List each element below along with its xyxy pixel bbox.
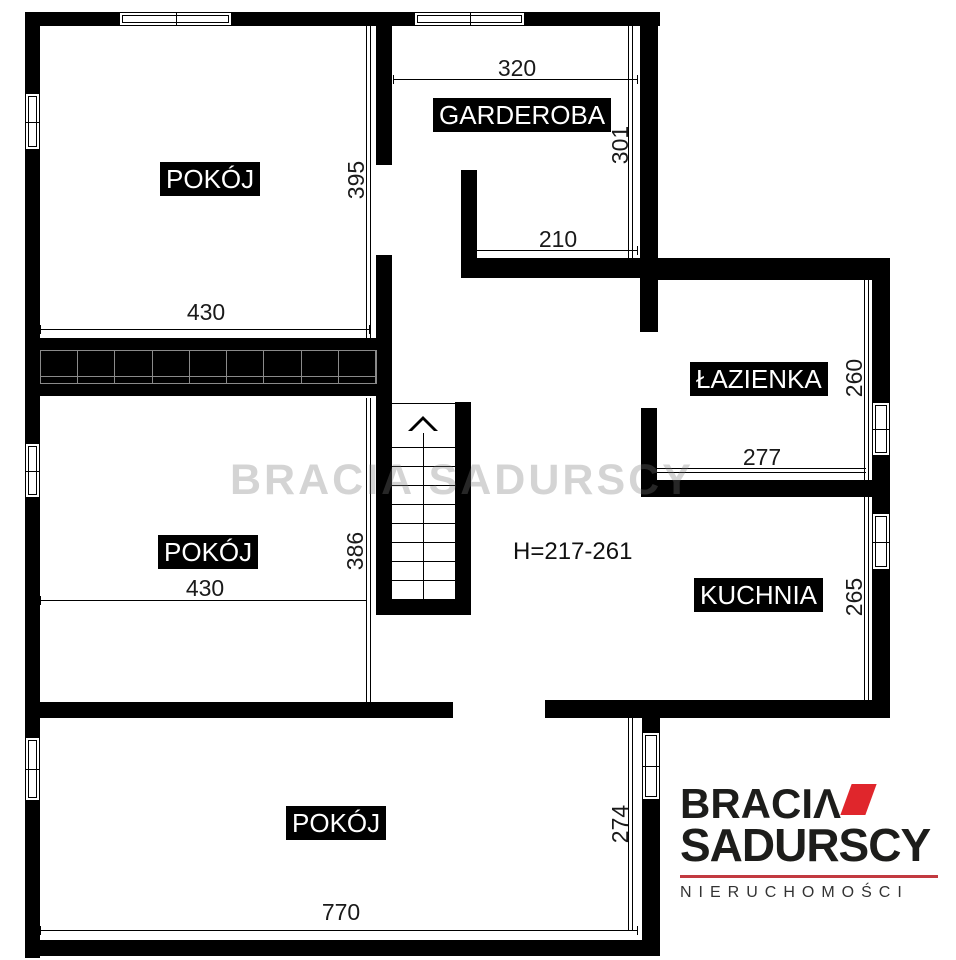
- room-label-pokoj-top: POKÓJ: [160, 162, 260, 196]
- wardrobe-symbol: [40, 350, 377, 384]
- logo-text-sadurscy: SADURSCY: [680, 822, 942, 868]
- wall-bottom: [25, 940, 660, 956]
- wall-middle: [25, 702, 453, 718]
- window-divider: [26, 122, 39, 123]
- wall-pokoj-top-right-upper: [376, 26, 392, 165]
- dim-pokoj-bottom-height: 274: [607, 794, 633, 854]
- agency-logo: BRACIΛ SADURSCY NIERUCHOMOŚCI: [680, 783, 942, 902]
- dim-pokoj-middle-height: 386: [342, 521, 368, 581]
- floor-plan-canvas: 320 301 210 395 430 260 277 386 430 265 …: [0, 0, 956, 960]
- stair-direction-arrow-inner: [412, 420, 434, 431]
- wall-right-upper: [872, 258, 890, 402]
- wall-stairs-left: [376, 396, 392, 615]
- logo-text-nieruchomosci: NIERUCHOMOŚCI: [680, 884, 942, 902]
- dimline-770: [40, 930, 638, 931]
- dim-garderoba-inner-width: 210: [528, 226, 588, 252]
- room-label-pokoj-bottom: POKÓJ: [286, 806, 386, 840]
- window-top-garderoba: [414, 12, 525, 26]
- room-label-pokoj-middle: POKÓJ: [158, 535, 258, 569]
- dim-lazienka-height: 260: [841, 348, 867, 408]
- wall-right-mid: [872, 456, 890, 513]
- window-left-upper: [25, 93, 40, 150]
- window-divider: [176, 13, 177, 25]
- wardrobe-cell: [153, 351, 190, 383]
- watermark-text: BRACIA SADURSCY: [230, 456, 694, 505]
- wall-stairs-right: [455, 402, 471, 615]
- wardrobe-cell: [190, 351, 227, 383]
- window-divider: [26, 471, 39, 472]
- window-divider: [873, 542, 889, 543]
- room-label-garderoba: GARDEROBA: [433, 98, 611, 132]
- logo-red-rule: [680, 875, 938, 878]
- wall-garderoba-l-horizontal: [461, 258, 657, 278]
- window-lazienka: [872, 402, 890, 456]
- window-divider: [470, 13, 471, 25]
- dim-lazienka-width: 277: [732, 444, 792, 470]
- dim-pokoj-middle-width: 430: [175, 575, 235, 601]
- window-left-lower: [25, 737, 40, 801]
- window-pokoj-bottom: [642, 732, 660, 800]
- wardrobe-cell: [264, 351, 301, 383]
- window-kuchnia: [872, 513, 890, 570]
- window-top-left: [119, 12, 232, 26]
- wardrobe-cell: [339, 351, 376, 383]
- logo-red-flag-icon: [840, 784, 876, 815]
- wall-stairs-bottom: [376, 600, 471, 615]
- wardrobe-cell: [302, 351, 339, 383]
- wardrobe-shelf-line: [41, 376, 376, 377]
- dim-pokoj-bottom-width: 770: [311, 899, 371, 925]
- window-divider: [873, 429, 889, 430]
- wall-pokoj-bottom-right-upper: [642, 702, 660, 732]
- wardrobe-cell: [78, 351, 115, 383]
- dim-pokoj-top-width: 430: [176, 299, 236, 325]
- wardrobe-cell: [115, 351, 152, 383]
- ceiling-height-note: H=217-261: [513, 538, 632, 566]
- window-left-middle: [25, 443, 40, 498]
- wall-pokoj-bottom-right-lower: [642, 800, 660, 956]
- dim-pokoj-top-height: 395: [343, 150, 369, 210]
- wall-garderoba-right: [640, 12, 658, 332]
- wall-pokoj-top-right-lower: [376, 255, 392, 338]
- window-divider: [26, 769, 39, 770]
- wall-right-lower: [872, 570, 890, 718]
- dim-garderoba-width: 320: [487, 55, 547, 81]
- wall-kuchnia-bottom: [545, 700, 890, 718]
- room-label-lazienka: ŁAZIENKA: [690, 362, 828, 396]
- wall-garderoba-l-vertical: [461, 170, 477, 262]
- dimline-430-top: [40, 329, 370, 330]
- window-divider: [643, 766, 659, 767]
- room-label-kuchnia: KUCHNIA: [694, 578, 823, 612]
- wardrobe-cell: [41, 351, 78, 383]
- wall-lazienka-top: [640, 258, 890, 280]
- wardrobe-cell: [227, 351, 264, 383]
- dim-kuchnia-height: 265: [841, 567, 867, 627]
